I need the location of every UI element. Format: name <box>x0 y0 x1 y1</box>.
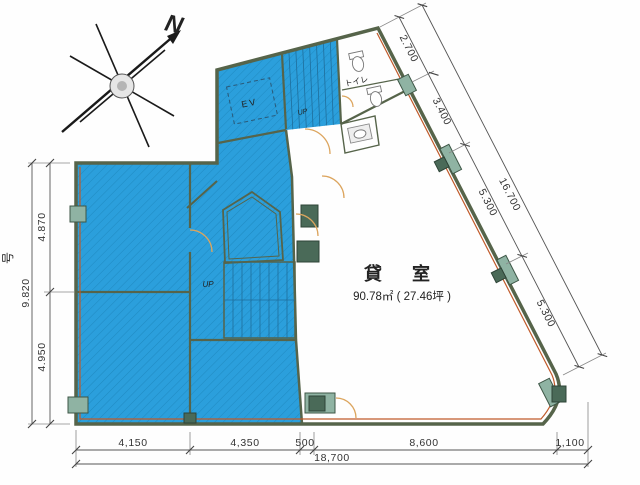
toilet-label: トイレ <box>344 75 369 89</box>
sink-fixture <box>348 124 373 143</box>
room-number-edge-label: 号 <box>1 252 15 264</box>
dim-bottom-total: 18,700 <box>314 452 350 464</box>
dim-diagonal-seg1: 2.700 <box>397 33 421 65</box>
dim-bottom-seg4: 8,600 <box>409 437 438 449</box>
dim-left-lower: 4.950 <box>36 342 48 371</box>
compass-rose: N <box>62 10 186 147</box>
dim-bottom-seg2: 4,350 <box>230 437 259 449</box>
dimension-diagonal: 2.700 3.400 5.300 5.300 16.700 <box>380 3 607 375</box>
dimension-left: 4.870 9.820 4.950 <box>20 159 74 428</box>
north-label: N <box>162 10 186 41</box>
dim-bottom-seg3: 500 <box>295 437 314 449</box>
toilet-fixture <box>349 51 367 73</box>
rental-room-label: 貸 室 <box>364 263 436 284</box>
dim-diagonal-seg4: 5.300 <box>534 298 558 330</box>
dim-bottom-seg1: 4,150 <box>118 437 147 449</box>
dim-diagonal-seg2: 3.400 <box>430 96 454 128</box>
dim-left-total: 9.820 <box>20 278 32 307</box>
floor-plan-drawing: 貸 室 90.78㎡ ( 27.46坪 ) EV UP UP トイレ 号 N 4… <box>0 0 640 485</box>
dim-bottom-seg5: 1,100 <box>555 437 584 449</box>
dim-diagonal-seg3: 5.300 <box>476 187 500 219</box>
floor-plan-page: 貸 室 90.78㎡ ( 27.46坪 ) EV UP UP トイレ 号 N 4… <box>0 0 640 485</box>
rental-area-label: 90.78㎡ ( 27.46坪 ) <box>353 290 451 303</box>
stairs-up-label-center: UP <box>202 280 214 289</box>
toilet-fixture <box>367 86 385 108</box>
dim-left-upper: 4.870 <box>36 212 48 241</box>
